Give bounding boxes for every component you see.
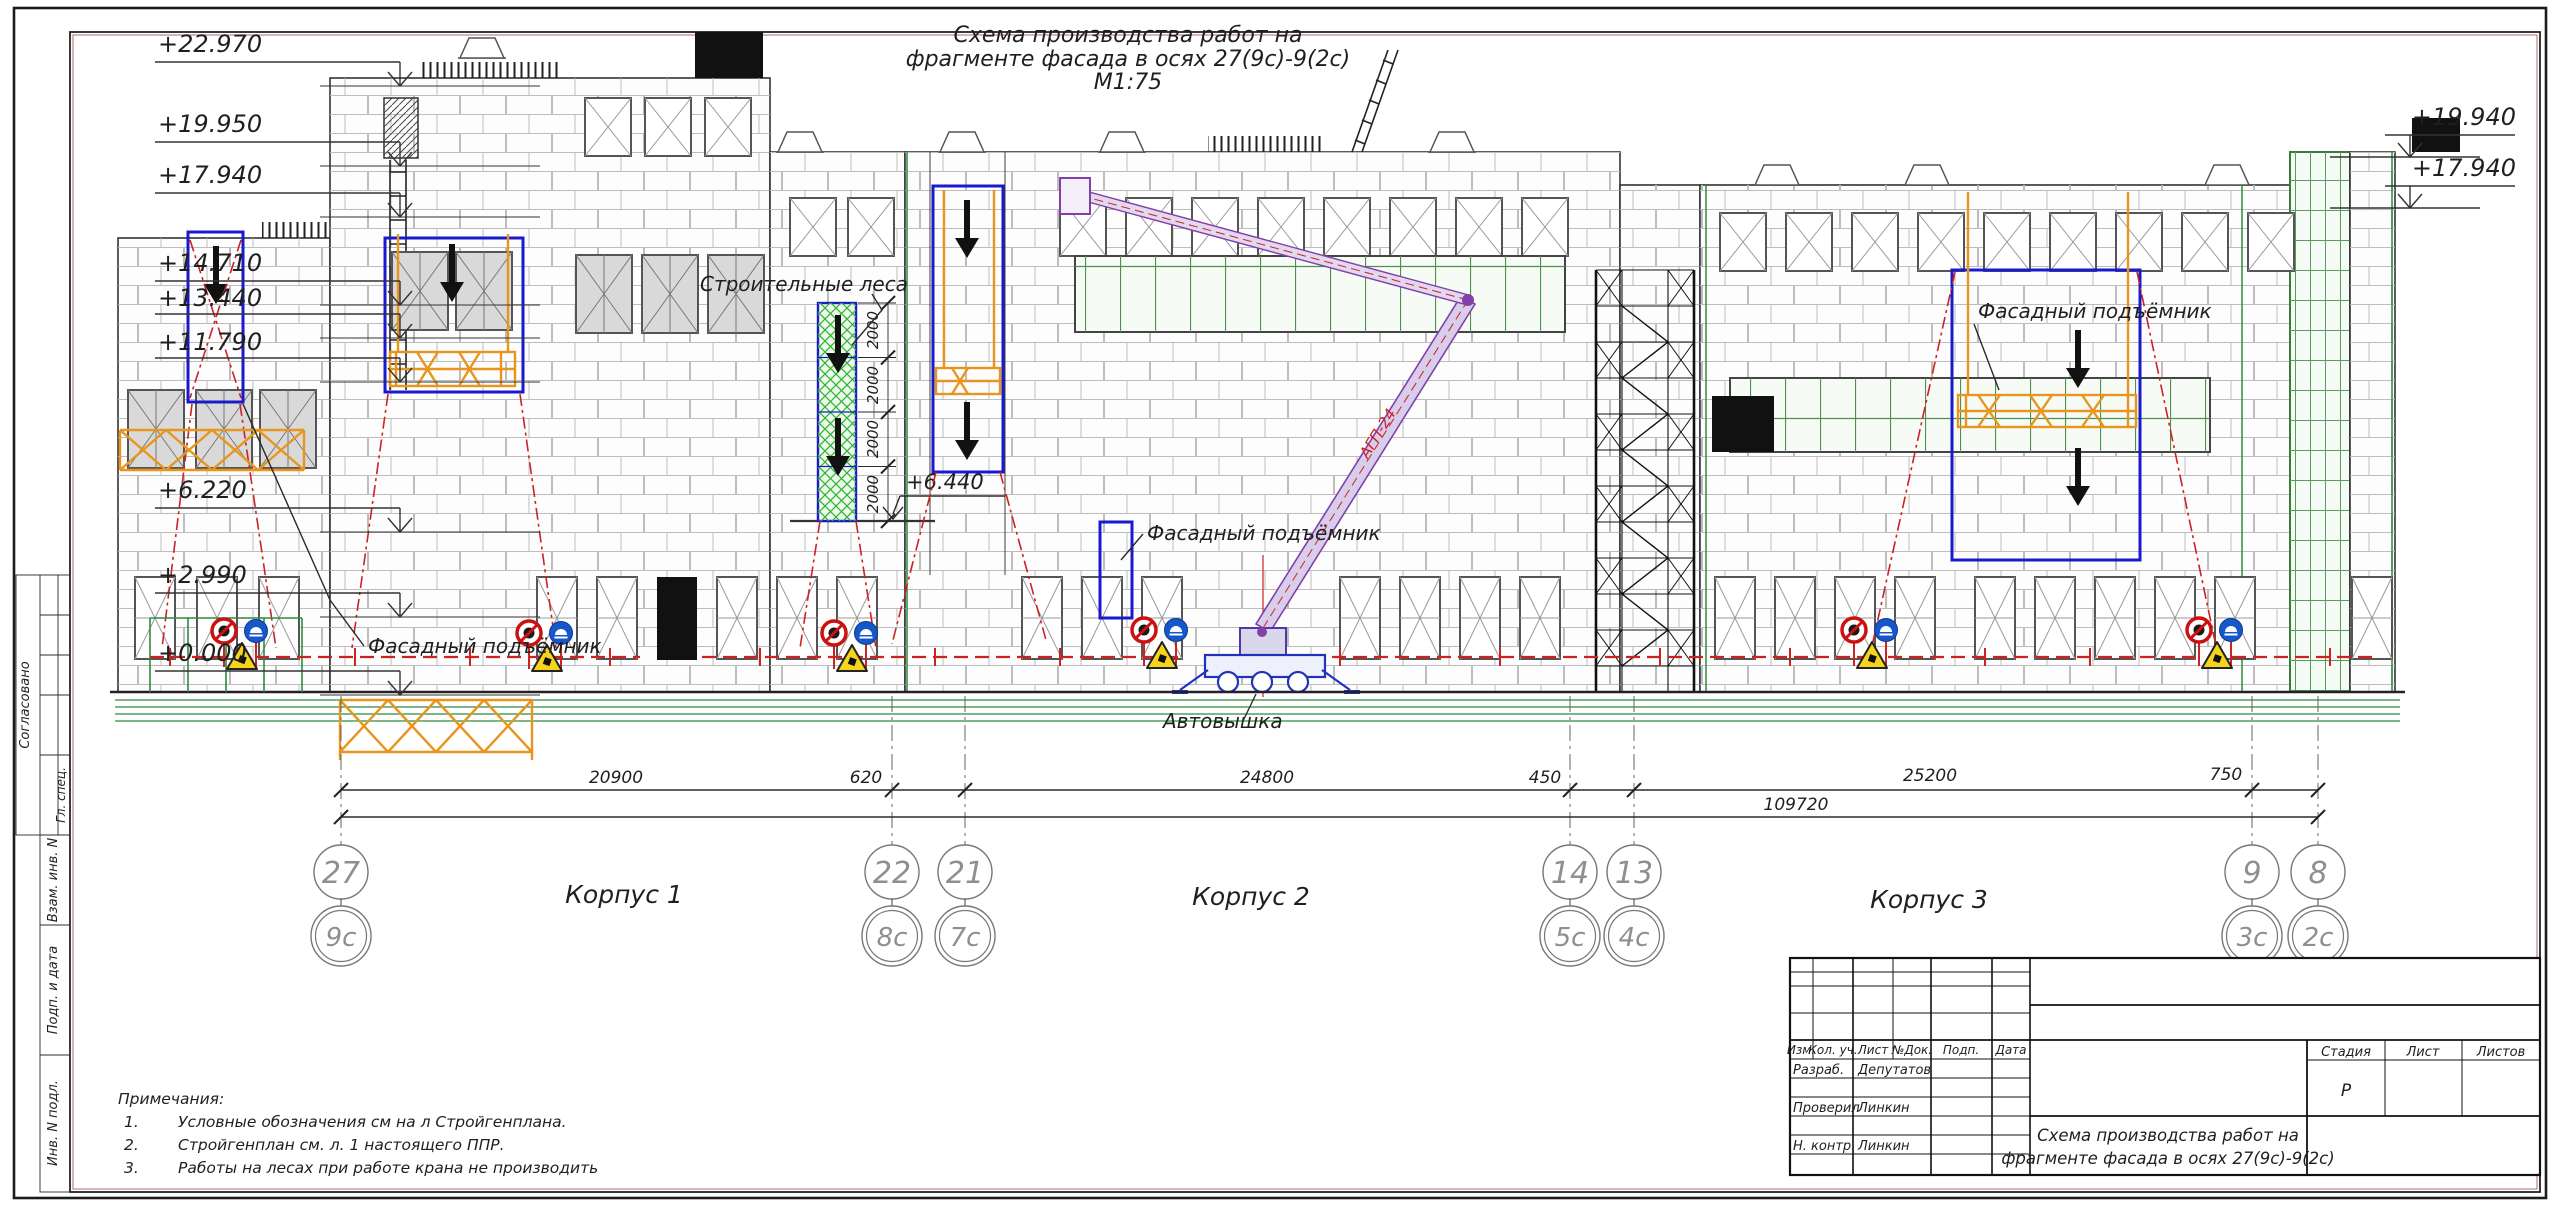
elevation-value: +22.970 — [158, 30, 262, 58]
building-1-label: Корпус 1 — [565, 880, 683, 909]
sidebar-approved-label: Согласовано — [18, 661, 33, 748]
stamp-header: Кол. уч. — [1808, 1043, 1857, 1057]
axis-14-5c: 14 5с — [1540, 845, 1600, 966]
note-num: 1. — [124, 1113, 139, 1131]
elevation-value: +17.940 — [2412, 154, 2516, 182]
building-3-label: Корпус 3 — [1870, 885, 1988, 914]
roof-vent — [1753, 165, 1801, 185]
roof-vent — [1098, 132, 1146, 152]
dimension-chain: 20900 620 24800 450 25200 750 109720 — [334, 696, 2325, 845]
roof-unit — [695, 32, 763, 78]
roof-stack — [384, 98, 418, 158]
stamp-name: Депутатов — [1857, 1063, 1931, 1078]
roof-vent — [2203, 165, 2251, 185]
building-2-label: Корпус 2 — [1192, 882, 1310, 911]
axis-21-7c: 21 7с — [935, 845, 995, 966]
wall-unit — [1712, 396, 1774, 452]
orange-canopy — [340, 700, 532, 760]
stamp-role: Разраб. — [1793, 1063, 1844, 1078]
title-block: Изм. Кол. уч. Лист №Док. Подп. Дата Разр… — [1787, 958, 2540, 1175]
stamp-doc-title-line2: фрагменте фасада в осях 27(9с)-9(2с) — [2001, 1149, 2334, 1168]
roof-railing — [1208, 136, 1322, 152]
roof-vent — [938, 132, 986, 152]
stamp-header: Лист — [1857, 1043, 1889, 1057]
svg-text:4с: 4с — [1619, 923, 1650, 953]
svg-text:3с: 3с — [2237, 923, 2268, 953]
note-num: 2. — [124, 1136, 139, 1154]
title-line2: фрагменте фасада в осях 27(9с)-9(2с) — [906, 47, 1350, 72]
scaffold-dim: 2000 — [864, 366, 882, 404]
stamp-sheet-label: Лист — [2406, 1045, 2440, 1060]
stamp-sheets-label: Листов — [2476, 1045, 2526, 1060]
svg-text:2с: 2с — [2303, 923, 2334, 953]
dim-20900: 20900 — [589, 768, 643, 788]
stamp-header: Подп. — [1943, 1043, 1979, 1057]
svg-text:8: 8 — [2308, 856, 2327, 891]
dim-750: 750 — [2210, 765, 2242, 785]
axis-9-3c: 9 3с — [2222, 845, 2282, 966]
roof-vent — [776, 132, 824, 152]
door — [657, 577, 697, 660]
elevation-value: +11.790 — [158, 328, 262, 356]
elevation-value: +13.440 — [158, 284, 262, 312]
stamp-doc-title-line1: Схема производства работ на — [2037, 1126, 2299, 1145]
stamp-name: Линкин — [1857, 1139, 1910, 1154]
svg-text:5с: 5с — [1555, 923, 1586, 953]
building-labels: Корпус 1 Корпус 2 Корпус 3 — [565, 880, 1988, 914]
title-scale: М1:75 — [1094, 70, 1162, 95]
sidebar-inv-orig-label: Инв. N подл. — [46, 1080, 61, 1166]
drawing-sheet: Согласовано Гл. спец. Взам. инв. N Подп.… — [0, 0, 2560, 1207]
note-text: Условные обозначения см на л Стройгенпла… — [178, 1113, 567, 1131]
drawing-header-title: Схема производства работ на фрагменте фа… — [906, 23, 1350, 95]
dim-25200: 25200 — [1903, 766, 1957, 786]
left-margin-tables: Согласовано Гл. спец. Взам. инв. N Подп.… — [16, 575, 70, 1192]
svg-text:7с: 7с — [950, 923, 981, 953]
stamp-stage-label: Стадия — [2321, 1045, 2371, 1060]
roof-vent — [458, 38, 506, 58]
elevation-value: +17.940 — [158, 161, 262, 189]
dim-24800: 24800 — [1240, 768, 1294, 788]
stamp-name: Линкин — [1857, 1101, 1910, 1116]
sidebar-replace-inv-label: Взам. инв. N — [46, 837, 61, 922]
stamp-stage-value: Р — [2341, 1081, 2352, 1101]
svg-text:27: 27 — [322, 856, 360, 891]
svg-text:9: 9 — [2242, 856, 2261, 891]
axis-22-8c: 22 8с — [862, 845, 922, 966]
sidebar-sign-date-label: Подп. и дата — [46, 946, 61, 1035]
title-line1: Схема производства работ на — [954, 23, 1303, 48]
axis-8-2c: 8 2с — [2288, 845, 2348, 966]
facade-hoist-label-mid: Фасадный подъёмник — [1147, 521, 1381, 545]
stamp-header: №Док. — [1891, 1043, 1932, 1057]
elevation-value: +19.950 — [158, 110, 262, 138]
facade-work-scheme-drawing: Согласовано Гл. спец. Взам. инв. N Подп.… — [0, 0, 2560, 1207]
axis-13-4c: 13 4с — [1604, 845, 1664, 966]
facade-hoist-label-right: Фасадный подъёмник — [1978, 299, 2212, 323]
svg-text:14: 14 — [1551, 856, 1589, 891]
note-num: 3. — [124, 1159, 139, 1177]
roof-vent — [1903, 165, 1951, 185]
notes: Примечания: 1. Условные обозначения см н… — [118, 1090, 598, 1177]
axis-27-9c: 27 9с — [311, 845, 371, 966]
roof-vent — [1428, 132, 1476, 152]
stamp-role: Проверил — [1793, 1101, 1860, 1116]
note-text: Стройгенплан см. л. 1 настоящего ППР. — [178, 1136, 505, 1154]
sidebar-chief-spec-label: Гл. спец. — [54, 767, 68, 823]
stamp-header: Дата — [1994, 1043, 2026, 1057]
svg-text:8с: 8с — [877, 923, 908, 953]
svg-text:22: 22 — [873, 856, 911, 891]
scaffold-dim: 2000 — [864, 311, 882, 349]
dim-620: 620 — [850, 768, 882, 788]
roof-ladder — [1352, 50, 1398, 152]
scaffold-dim: 2000 — [864, 475, 882, 513]
elevation-value: +19.940 — [2412, 103, 2516, 131]
svg-text:9с: 9с — [326, 923, 357, 953]
dim-450: 450 — [1529, 768, 1561, 788]
elevation-value: +0.000 — [158, 639, 247, 667]
note-text: Работы на лесах при работе крана не прои… — [178, 1159, 598, 1177]
elevation-value: +2.990 — [158, 561, 247, 589]
roof-railing — [262, 222, 330, 238]
scaffold-dim: 2000 — [864, 420, 882, 458]
roof-railing — [420, 62, 560, 78]
elevation-mid-value: +6.440 — [906, 470, 984, 494]
scaffold-label: Строительные леса — [700, 272, 908, 296]
svg-text:13: 13 — [1615, 856, 1653, 891]
stamp-role: Н. контр. — [1793, 1139, 1855, 1154]
elevation-value: +6.220 — [158, 476, 247, 504]
dim-total: 109720 — [1764, 795, 1829, 815]
notes-title: Примечания: — [118, 1090, 224, 1108]
boom-truck-label: Автовышка — [1161, 709, 1283, 733]
svg-text:21: 21 — [946, 856, 984, 891]
facade-hoist-label-left: Фасадный подъёмник — [368, 634, 602, 658]
elevation-value: +14.710 — [158, 249, 262, 277]
boom-basket — [1060, 178, 1090, 214]
